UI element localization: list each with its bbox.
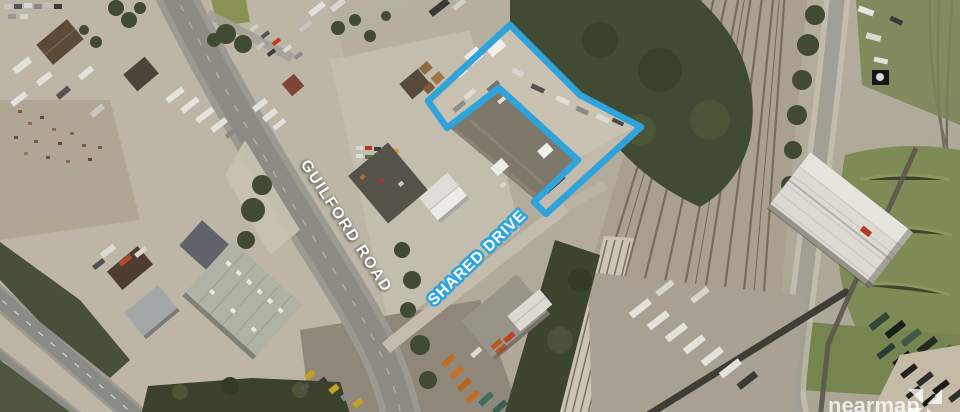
nearmap-wordmark: nearmap: [828, 393, 920, 412]
aerial-map-canvas: GUILFORD ROAD SHARED DRIVE nearmap: [0, 0, 960, 412]
aerial-map-image: GUILFORD ROAD SHARED DRIVE nearmap: [0, 0, 960, 412]
